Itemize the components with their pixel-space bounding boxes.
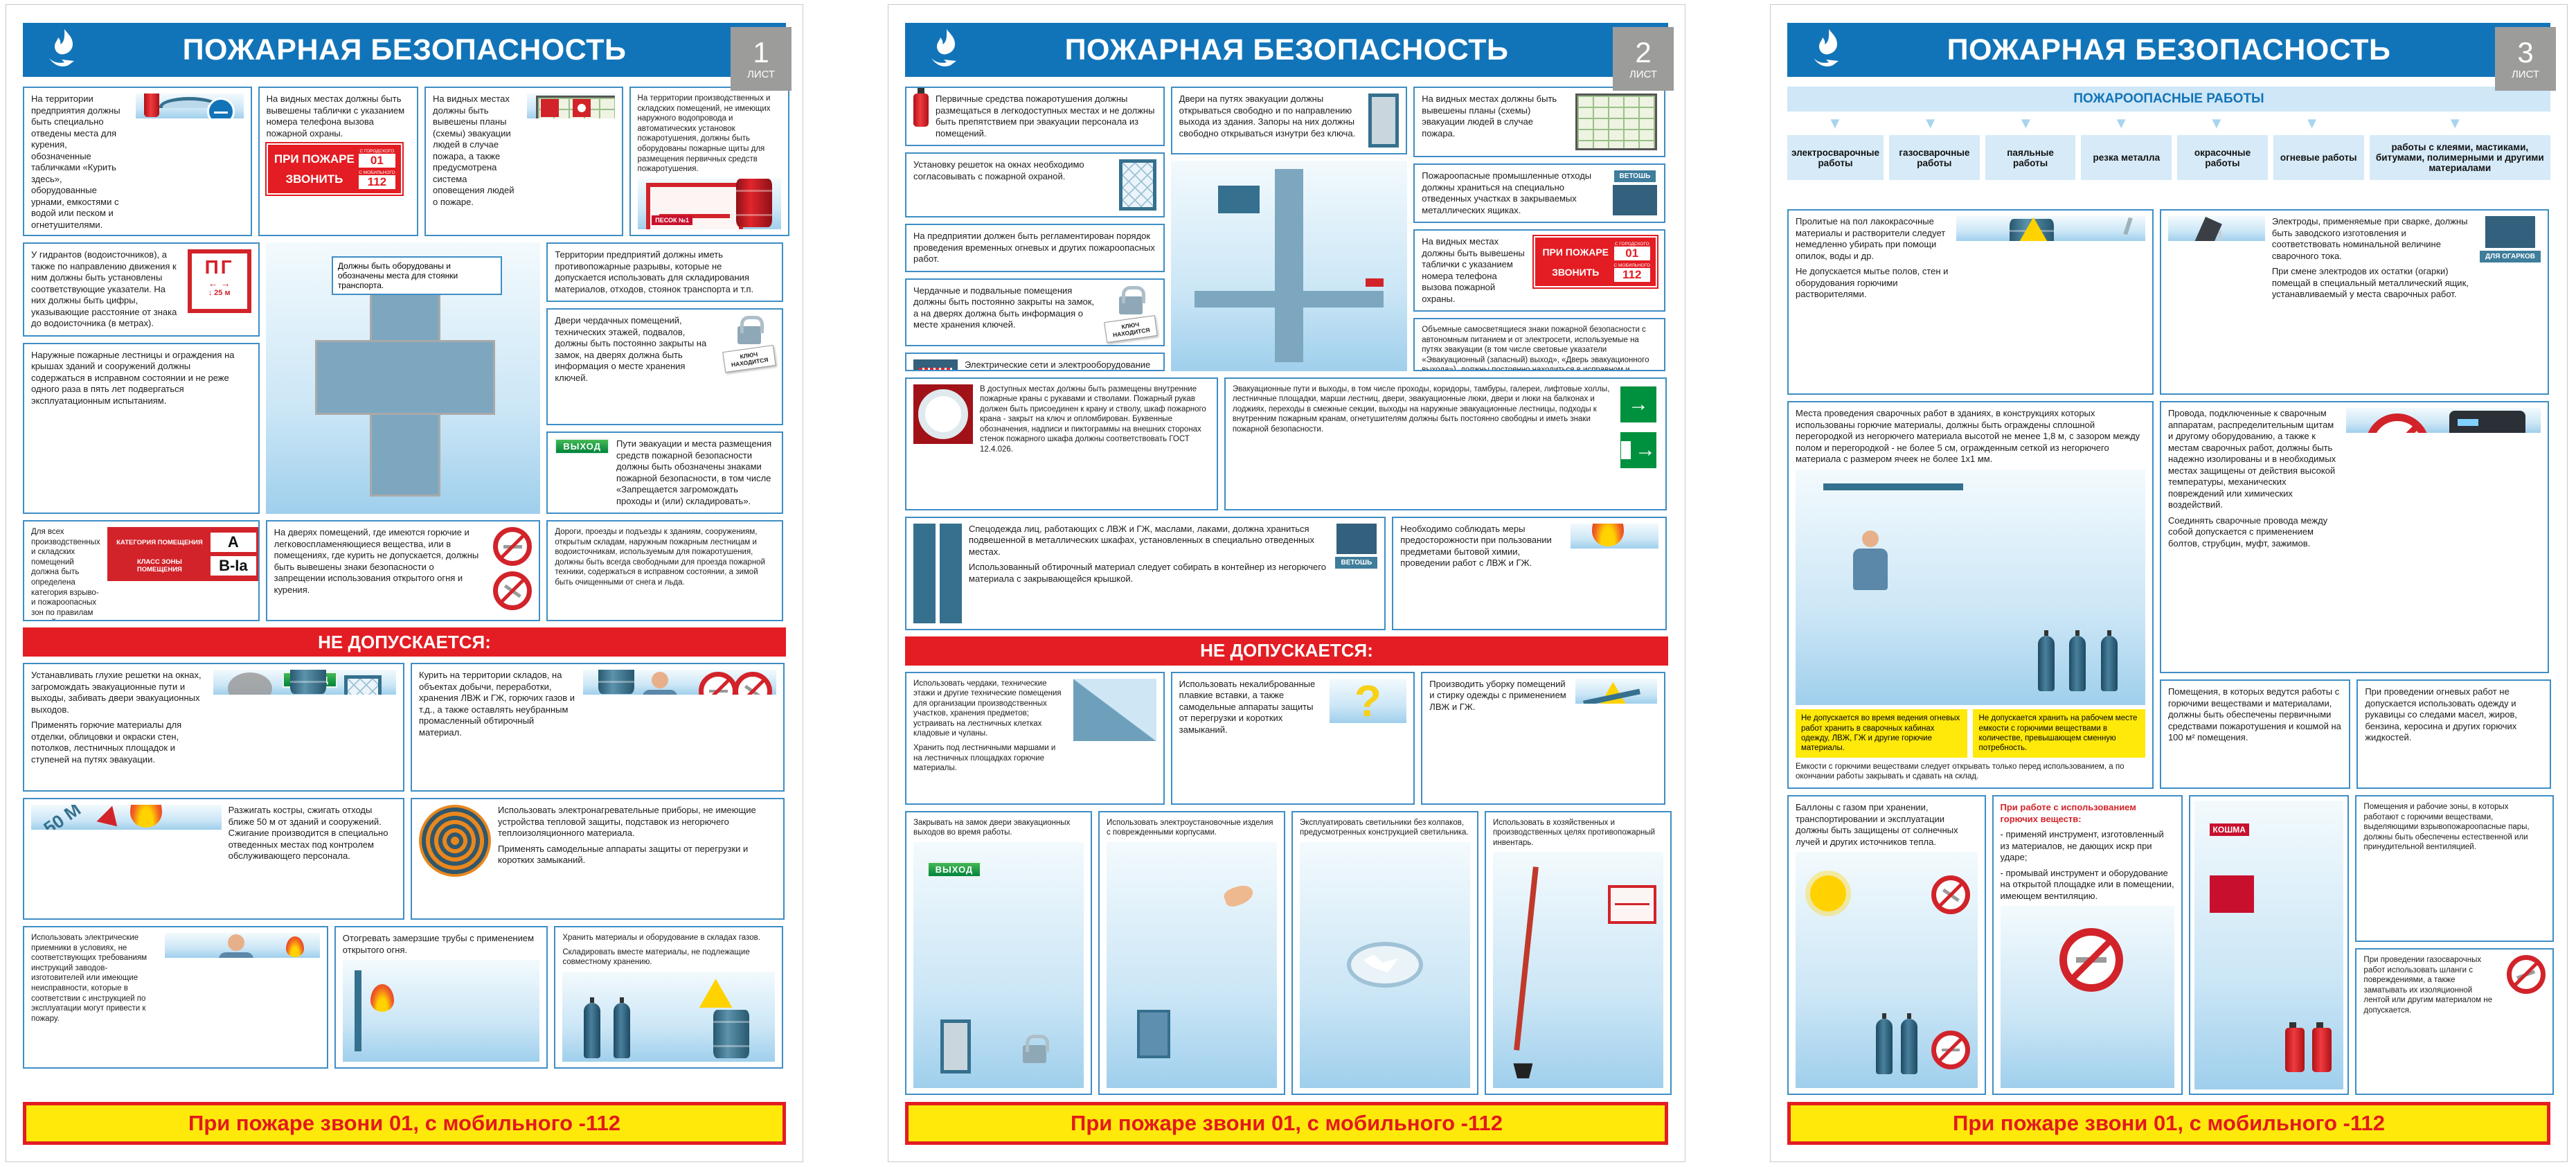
cylinders-sun-illustration [1796,852,1978,1088]
na-text: Курить на территории складов, на объекта… [419,670,576,738]
poster-header: ПОЖАРНАЯ БЕЗОПАСНОСТЬ 3 ЛИСТ [1787,23,2550,77]
fire-shield-icon [1608,885,1656,924]
key-location-tag: КЛЮЧ НАХОДИТСЯ [1104,314,1157,342]
na-text: Использовать электронагревательные прибо… [498,805,776,839]
rule-text: Баллоны с газом при хранении, транспорти… [1796,802,1978,848]
call-sign-title: ПРИ ПОЖАРЕ [274,152,356,166]
call-number-mobile: 112 [359,175,395,189]
call-number-city: 01 [359,154,395,168]
hydrant-distance: ↓ 25 м [192,289,247,297]
koshma-extinguishers-panel: КОШМА [2189,795,2349,1095]
rule-text: Пути эвакуации и места размещения средст… [616,438,775,507]
stub-box-label: ДЛЯ ОГАРКОВ [2480,251,2541,262]
works-category: электросварочные работы [1787,135,1884,180]
koshma-extinguishers-illustration: КОШМА [2194,801,2343,1089]
rule-panel-category: Для всех производственных и складских по… [23,520,260,621]
distance-50m-label: 50 М [40,805,85,830]
rule-text: Чердачные и подвальные помещения должны … [913,285,1098,331]
smoking-shelter-illustration [136,93,244,118]
call-from-mobile: С МОБИЛЬНОГО [1614,263,1650,268]
misused-inventory-illustration [1493,852,1663,1088]
rule-text: На видных местах должны быть вывешены пл… [1422,93,1568,139]
fire-extinguisher-icon [913,93,929,127]
down-arrow-icon: ▼ [1883,116,1978,131]
emergency-footer: При пожаре звони 01, с мобильного -112 [23,1102,786,1145]
rule-text: На видных местах должны быть вывешены та… [1422,236,1527,305]
na-text: Использовать электрические приемники в у… [31,933,158,1024]
fire-extinguisher-icon [2312,1028,2332,1072]
na-panel-fuse-links: Использовать некалиброванные плавкие вст… [1171,672,1415,805]
call-sign-action: ЗВОНИТЬ [274,172,356,186]
rule-panel-attic-locked: Чердачные и подвальные помещения должны … [905,278,1165,346]
rules-row-2: Места проведения сварочных работ в здани… [1787,401,2550,789]
lock-and-key-illustration: КЛЮЧ НАХОДИТСЯ [1105,285,1156,339]
rule-text: На видных местах должны быть вывешены пл… [433,93,520,208]
na-text: Складировать вместе материалы, не подлеж… [562,947,775,968]
rule-panel-no-open-fire: На дверях помещений, где имеются горючие… [266,520,541,621]
rule-text: Должны быть оборудованы и обозначены мес… [338,261,458,290]
rule-text: Спецодежда лиц, работающих с ЛВЖ и ГЖ, м… [969,524,1328,558]
flame-spill-illustration [1571,524,1658,549]
window-bars-icon [1119,159,1156,211]
na-text: Использовать электроустановочные изделия… [1107,818,1277,838]
sparks-icon [286,936,304,957]
rule-panel-evac-doors: Двери на путях эвакуации должны открыват… [1171,87,1408,154]
blocked-exit-illustration: ВЫХОД [213,670,396,695]
sheet-word: ЛИСТ [2512,69,2539,80]
na-panel-lamp-covers: Эксплуатировать светильники без колпаков… [1291,811,1478,1096]
metal-box-icon [1613,185,1657,215]
no-twisted-wires-icon [2365,413,2429,433]
rule-panel-workwear: Спецодежда лиц, работающих с ЛВЖ и ГЖ, м… [905,517,1386,630]
rule-panel-window-bars: Установку решеток на окнах необходимо со… [905,152,1165,217]
rules-row-top: На территории предприятия должны быть сп… [23,87,786,236]
hydrant-arrows-icon: ← → [192,278,247,289]
rule-text: Необходимо соблюдать меры предосторожнос… [1400,524,1564,569]
note-text: Не допускается во время ведения огневых … [1796,709,1967,758]
rules-row-lower: Для всех производственных и складских по… [23,520,786,621]
rule-text: У гидрантов (водоисточников), а также по… [31,249,181,330]
emergency-footer: При пожаре звони 01, с мобильного -112 [1787,1102,2550,1145]
category-label: КАТЕГОРИЯ ПОМЕЩЕНИЯ [114,539,205,546]
rule-heading: При работе с использованием горючих веще… [2001,802,2175,825]
arrow-right-icon: → [1635,438,1656,462]
na-text: Применять горючие материалы для отделки,… [31,720,206,765]
welder-workshop-illustration [1796,470,2145,706]
rule-text: В доступных местах должны быть размещены… [980,384,1210,455]
na-panel-gas-storage: Хранить материалы и оборудование в склад… [554,926,783,1069]
fire-icon [1592,524,1624,547]
prohibition-signs [493,527,532,610]
no-open-flame-icon [1931,875,1970,914]
rule-panel-gas-cylinders: Баллоны с газом при хранении, транспорти… [1787,795,1986,1095]
koshma-box-icon [2210,875,2254,913]
door-glyph [1621,441,1631,459]
mopping-illustration [1575,679,1657,704]
bonfire-illustration: 50 М [31,805,222,830]
exit-sign: ВЫХОД [927,862,982,878]
yellow-notes: Не допускается во время ведения огневых … [1796,709,2145,758]
not-allowed-row-1: Устанавливать глухие решетки на окнах, з… [23,663,786,792]
na-text: Закрывать на замок двери эвакуационных в… [913,818,1084,838]
na-panel-electric-devices: Использовать электрические приемники в у… [23,926,328,1069]
fire-hose-marker [1366,278,1384,287]
poster-sheet-2: ПОЖАРНАЯ БЕЗОПАСНОСТЬ 2 ЛИСТ Первичные с… [888,4,1685,1162]
rule-panel-call-sign: На видных местах должны быть вывешены та… [1413,229,1665,312]
rule-panel-call-sign: На видных местах должны быть вывешены та… [258,87,418,236]
rule-text: Использованный обтирочный материал следу… [969,562,1328,585]
gas-cylinders-illustration [562,972,775,1062]
poster-title: ПОЖАРНАЯ БЕЗОПАСНОСТЬ [23,33,786,67]
worker-figure [641,672,679,695]
na-text: Использовать чердаки, технические этажи … [913,679,1066,740]
shovel-handle-icon [1514,866,1539,1050]
question-wire-icon: ? [1354,679,1381,723]
metal-box-icon [2485,216,2535,248]
running-man-exit-sign: → [1618,430,1658,470]
not-allowed-row-2: Закрывать на замок двери эвакуационных в… [905,811,1668,1096]
broken-switch-illustration [1107,842,1277,1088]
fire-extinguisher-icon [2285,1028,2305,1072]
gas-cylinder-icon [614,1003,630,1058]
rule-text: При смене электродов их остатки (огарки)… [2272,266,2473,301]
site-plan-illustration: Должны быть оборудованы и обозначены мес… [266,242,541,514]
note-text: Емкости с горючими веществами следует от… [1796,762,2145,782]
works-category: паяльные работы [1985,135,2076,180]
rule-panel-electrodes: Электроды, применяемые при сварке, должн… [2160,209,2549,395]
waste-box-illustration: ВЕТОШЬ [1613,170,1657,215]
rule-panel-illuminated-signs: Объемные самосветящиеся знаки пожарной б… [1413,318,1665,371]
rule-text: Пролитые на пол лакокрасочные материалы … [1796,216,1949,262]
rules-col-left: У гидрантов (водоисточников), а также по… [23,242,260,514]
rule-panel-welding-places: Места проведения сварочных работ в здани… [1787,401,2154,789]
rule-text: При проведении огневых работ не допускае… [2365,686,2543,744]
barrel-icon [290,670,326,694]
no-smoking-icon [493,527,532,566]
rule-panel-fire-cranes: В доступных местах должны быть размещены… [905,377,1218,510]
na-text: Разжигать костры, сжигать отходы ближе 5… [229,805,396,862]
rule-text: На территории производственных и складск… [638,93,781,175]
building-wall [1275,169,1303,362]
note-text: Не допускается хранить на рабочем месте … [1973,709,2145,758]
rule-text: Электроды, применяемые при сварке, должн… [2272,216,2473,262]
attic-window [1218,186,1260,213]
na-text: Использовать некалиброванные плавкие вст… [1179,679,1323,736]
down-arrow-icon: ▼ [1787,116,1883,131]
paint-cleanup-illustration [1956,216,2145,241]
koshma-label: КОШМА [2210,823,2249,836]
padlock-icon [1023,1045,1046,1063]
rules-row-workwear: Спецодежда лиц, работающих с ЛВЖ и ГЖ, м… [905,517,1668,630]
rule-panel-evacuation-signs: ВЫХОД Пути эвакуации и места размещения … [546,431,783,514]
rule-text: Места проведения сварочных работ в здани… [1796,408,2145,465]
evacuation-plan-illustration [527,93,615,118]
pipe-icon [355,970,361,1052]
na-panel-smoking-warehouse: Курить на территории складов, на объекта… [411,663,785,792]
rules-row-1: Пролитые на пол лакокрасочные материалы … [1787,209,2550,395]
rags-box-label: ВЕТОШЬ [1614,170,1656,182]
na-panel-attics-storage: Использовать чердаки, технические этажи … [905,672,1165,805]
zone-value: В-Iа [211,556,256,576]
rule-text: Помещения и рабочие зоны, в которых рабо… [2363,802,2546,853]
rule-text: Для всех производственных и складских по… [31,527,100,621]
rule-panel-welding-wires: Провода, подключенные к сварочным аппара… [2160,401,2549,673]
na-text: Хранить под лестничными маршами и на лес… [913,743,1066,774]
no-smoking-icon [699,672,737,695]
vent-duct-icon [1823,483,1963,490]
flammable-warning-icon [699,979,733,1008]
rule-text: Первичные средства пожаротушения должны … [936,93,1156,139]
rules-col-left: Первичные средства пожаротушения должны … [905,87,1165,371]
rule-panel-evac-plans: На видных местах должны быть вывешены пл… [1413,87,1665,157]
fire-hazard-works-diagram: ПОЖАРООПАСНЫЕ РАБОТЫ ▼▼▼▼▼▼▼ электросвар… [1787,87,2550,203]
na-panel-locked-exits: Закрывать на замок двери эвакуационных в… [905,811,1092,1096]
torch-flame-icon [370,984,394,1012]
na-panel-heaters: Использовать электронагревательные прибо… [411,798,785,920]
rule-panel-oily-clothes: При проведении огневых работ не допускае… [2356,679,2551,789]
rule-text: Помещения, в которых ведутся работы с го… [2168,686,2342,744]
rule-panel-attic-doors: Двери чердачных помещений, технических э… [546,308,783,425]
rule-text: При проведении газосварочных работ испол… [2363,955,2500,1016]
rule-panel-evac-routes: Эвакуационные пути и выходы, в том числе… [1224,377,1667,510]
key-location-tag: КЛЮЧ НАХОДИТСЯ [722,345,776,373]
rags-box-label: ВЕТОШЬ [1335,557,1377,569]
rule-panel-flammable-substances: При работе с использованием горючих веще… [1992,795,2183,1095]
water-barrel-icon [736,179,772,227]
bottom-row: Баллоны с газом при хранении, транспорти… [1787,795,2550,1095]
call-from-mobile: С МОБИЛЬНОГО [359,170,395,175]
heat-glyph [1942,1049,1960,1052]
works-category: работы с клеями, мастиками, битумами, по… [2370,135,2550,180]
na-text: Хранить материалы и оборудование в склад… [562,933,775,943]
red-arrow-icon [96,806,125,830]
electrode-icon [2219,231,2221,241]
fire-alarm-button-icon [541,99,559,117]
works-category: резка металла [2081,135,2172,180]
switch-box-icon [1137,1010,1170,1058]
call-from-city: С ГОРОДСКОГО [1614,242,1650,247]
rule-panel-fire-shield: На территории производственных и складск… [629,87,789,236]
works-category: газосварочные работы [1889,135,1980,180]
staircase-illustration [1073,679,1156,741]
rule-panel-roads: Дороги, проезды и подъезды к зданиям, со… [546,520,783,621]
na-text: Использовать в хозяйственных и производс… [1493,818,1663,848]
fire-call-sign: ПРИ ПОЖАРЕЗВОНИТЬ С ГОРОДСКОГО01 С МОБИЛ… [267,143,402,195]
sheet-number: 1 [753,38,769,67]
evacuation-plan-icon [1575,93,1657,150]
stub-box-illustration: ДЛЯ ОГАРКОВ [2480,216,2541,262]
rule-panel-rooms-means: Помещения, в которых ведутся работы с го… [2160,679,2350,789]
rule-bullet: - применяй инструмент, изготовленный из … [2001,829,2175,864]
pointing-hand-icon [1222,882,1255,909]
welder-figure [1852,531,1889,590]
evacuation-door-icon [1368,93,1399,148]
room-category-sign: КАТЕГОРИЯ ПОМЕЩЕНИЯ А КЛАСС ЗОНЫ ПОМЕЩЕН… [107,527,260,581]
worker-figure [217,934,255,958]
smoking-allowed-sign-icon [207,98,235,118]
rule-panel-hot-works: На предприятии должен быть регламентиров… [905,224,1165,272]
na-panel-washing-solvents: Производить уборку помещений и стирку од… [1421,672,1665,805]
rule-text: Двери на путях эвакуации должны открыват… [1179,93,1362,139]
na-panel-damaged-switches: Использовать электроустановочные изделия… [1098,811,1285,1096]
metal-lockers-icon [913,524,962,623]
rule-text: Пожароопасные промышленные отходы должны… [1422,170,1606,216]
call-sign-title: ПРИ ПОЖАРЕ [1541,247,1611,258]
lock-and-key-illustration: КЛЮЧ НАХОДИТСЯ [724,315,775,369]
poster-header: ПОЖАРНАЯ БЕЗОПАСНОСТЬ 1 ЛИСТ [23,23,786,77]
rule-text: Двери чердачных помещений, технических э… [555,315,717,384]
building-floor [1195,291,1384,308]
poster-content: На территории предприятия должны быть сп… [23,87,786,1095]
tool-glyph [2076,957,2107,963]
rule-text: Объемные самосветящиеся знаки пожарной б… [1422,325,1657,371]
rules-col-middle: Двери на путях эвакуации должны открыват… [1171,87,1408,371]
not-allowed-row-3: Использовать электрические приемники в у… [23,926,786,1069]
rule-text: Наружные пожарные лестницы и ограждения … [31,350,244,407]
poster-title: ПОЖАРНАЯ БЕЗОПАСНОСТЬ [905,33,1668,67]
rules-col-right: На видных местах должны быть вывешены пл… [1413,87,1665,371]
rule-panel-fire-breaks: Территории предприятий должны иметь прот… [546,242,783,302]
rules-col-right: Провода, подключенные к сварочным аппара… [2160,401,2549,789]
rule-panel-smoking-area: На территории предприятия должны быть сп… [23,87,252,236]
na-panel-bonfires: 50 М Разжигать костры, сжигать отходы бл… [23,798,404,920]
call-number-city: 01 [1614,247,1650,260]
flame-logo-icon [41,28,85,74]
smoke-icon [228,672,272,695]
fire-shield-illustration: ПЕСОК №1 [638,179,781,229]
sheet-number-tab: 1 ЛИСТ [731,27,791,91]
window-bars-icon [344,675,382,695]
site-plan-illustration-panel: Должны быть оборудованы и обозначены мес… [266,242,541,514]
down-arrow-icon: ▼ [2360,116,2551,131]
barrel-icon [713,1010,749,1058]
sheet-word: ЛИСТ [1629,69,1657,80]
not-allowed-row-2: 50 М Разжигать костры, сжигать отходы бл… [23,798,786,920]
sheet-number: 3 [2517,38,2533,67]
exit-sign: ВЫХОД [555,438,609,454]
gas-cylinder-icon [1901,1019,1917,1074]
barrel-icon [598,670,634,694]
shovel-blade-icon [1513,1063,1532,1078]
rule-panel-electric-networks: Электрические сети и электрооборудование… [905,353,1165,371]
poster-title: ПОЖАРНАЯ БЕЗОПАСНОСТЬ [1787,33,2550,67]
rule-text: Установку решеток на окнах необходимо со… [913,159,1112,182]
na-panel-thawing-pipes: Отогревать замерзшие трубы с применением… [334,926,548,1069]
zone-label: КЛАСС ЗОНЫ ПОМЕЩЕНИЯ [114,558,205,573]
fire-alarm-bell-icon [573,99,591,117]
na-text: Производить уборку помещений и стирку од… [1429,679,1568,713]
works-category-boxes: электросварочные работы газосварочные ра… [1787,135,2550,180]
gas-cylinder-icon [2069,636,2086,691]
poster-sheet-1: ПОЖАРНАЯ БЕЗОПАСНОСТЬ 1 ЛИСТ На территор… [6,4,803,1162]
works-arrows: ▼▼▼▼▼▼▼ [1787,116,2550,131]
hose-glyph [2517,970,2536,979]
emergency-footer: При пожаре звони 01, с мобильного -112 [905,1102,1668,1145]
door-icon [940,1019,971,1074]
no-sparks-illustration [2001,906,2175,1088]
down-arrow-icon: ▼ [2264,116,2360,131]
rule-panel-household-chem: Необходимо соблюдать меры предосторожнос… [1392,517,1667,630]
down-arrow-icon: ▼ [2073,116,2169,131]
rule-text: Провода, подключенные к сварочным аппара… [2168,408,2339,511]
ceiling-lamp-icon [1347,942,1423,988]
rule-panel-gas-hoses: При проведении газосварочных работ испол… [2355,948,2554,1095]
sparking-tool-illustration [165,933,319,958]
rule-panel-ladders: Наружные пожарные лестницы и ограждения … [23,343,260,515]
no-open-flame-icon [733,672,772,695]
match-glyph [1942,889,1960,902]
poster-content: ПОЖАРООПАСНЫЕ РАБОТЫ ▼▼▼▼▼▼▼ электросвар… [1787,87,2550,1095]
rule-panel-spilled-paint: Пролитые на пол лакокрасочные материалы … [1787,209,2154,395]
na-text: Отогревать замерзшие трубы с применением… [343,933,540,956]
rule-text: На территории предприятия должны быть сп… [31,93,129,231]
hydrant-sign-text: ПГ [192,256,247,278]
fire-call-sign: ПРИ ПОЖАРЕЗВОНИТЬ С ГОРОДСКОГО01 С МОБИЛ… [1534,236,1657,287]
rule-text: Эвакуационные пути и выходы, в том числе… [1233,384,1611,435]
rule-text: На предприятии должен быть регламентиров… [913,231,1156,265]
na-text: Устанавливать глухие решетки на окнах, з… [31,670,206,715]
rule-bullet: - промывай инструмент и оборудование на … [2001,868,2175,902]
parking-callout-panel: Должны быть оборудованы и обозначены мес… [332,256,502,295]
sheet-number: 2 [1635,38,1651,67]
cigarette-glyph [503,545,522,549]
rule-text: Территории предприятий должны иметь прот… [555,249,775,295]
call-number-mobile: 112 [1614,268,1650,282]
poster-header: ПОЖАРНАЯ БЕЗОПАСНОСТЬ 2 ЛИСТ [905,23,1668,77]
building-section-illustration [1171,161,1408,371]
sheet-number-tab: 2 ЛИСТ [1613,27,1674,91]
cigarette-glyph [709,690,728,693]
electrical-cabinet-icon [913,359,958,371]
works-category: окрасочные работы [2177,135,2268,180]
rules-col-right: Территории предприятий должны иметь прот… [546,242,783,514]
welding-hand-illustration [2168,216,2265,241]
sheet-word: ЛИСТ [747,69,775,80]
flame-logo-icon [1805,28,1850,74]
na-panel-fire-inventory: Использовать в хозяйственных и производс… [1485,811,1672,1096]
fire-hose-cabinet-icon [913,384,973,444]
na-panel-bars-exits: Устанавливать глухие решетки на окнах, з… [23,663,404,792]
rags-container-illustration: ВЕТОШЬ [1335,524,1377,569]
no-open-flame-icon [493,571,532,610]
prohibition-icon [2507,955,2546,994]
gas-cylinder-icon [2101,636,2118,691]
sand-box-label: ПЕСОК №1 [652,215,692,225]
heater-coil-icon [419,805,491,877]
welding-machine-icon [2449,411,2525,433]
welding-machine-illustration [2346,408,2541,433]
sheet-number-tab: 3 ЛИСТ [2495,27,2556,91]
rule-text: Соединять сварочные провода между собой … [2168,515,2339,550]
rule-panel-hydrant: У гидрантов (водоисточников), а также по… [23,242,260,337]
call-sign-action: ЗВОНИТЬ [1541,267,1611,278]
no-heating-icon [1931,1031,1970,1069]
padlock-icon [737,326,761,344]
not-allowed-banner: НЕ ДОПУСКАЕТСЯ: [23,627,786,657]
rule-panel-primary-means: Первичные средства пожаротушения должны … [905,87,1165,146]
match-glyph [504,585,521,598]
arrow-right-icon: → [1628,393,1649,416]
rule-panel-work-zones: Помещения и рабочие зоны, в которых рабо… [2355,795,2554,942]
not-allowed-row-1: Использовать чердаки, технические этажи … [905,672,1668,805]
poster-content: Первичные средства пожаротушения должны … [905,87,1668,1095]
na-text: Эксплуатировать светильники без колпаков… [1300,818,1470,838]
down-arrow-icon: ▼ [2169,116,2264,131]
works-diagram-title: ПОЖАРООПАСНЫЕ РАБОТЫ [1787,87,2550,112]
rules-row-cranes: В доступных местах должны быть размещены… [905,377,1668,510]
call-from-city: С ГОРОДСКОГО [359,149,395,154]
evacuation-direction-sign: → [1618,384,1658,425]
